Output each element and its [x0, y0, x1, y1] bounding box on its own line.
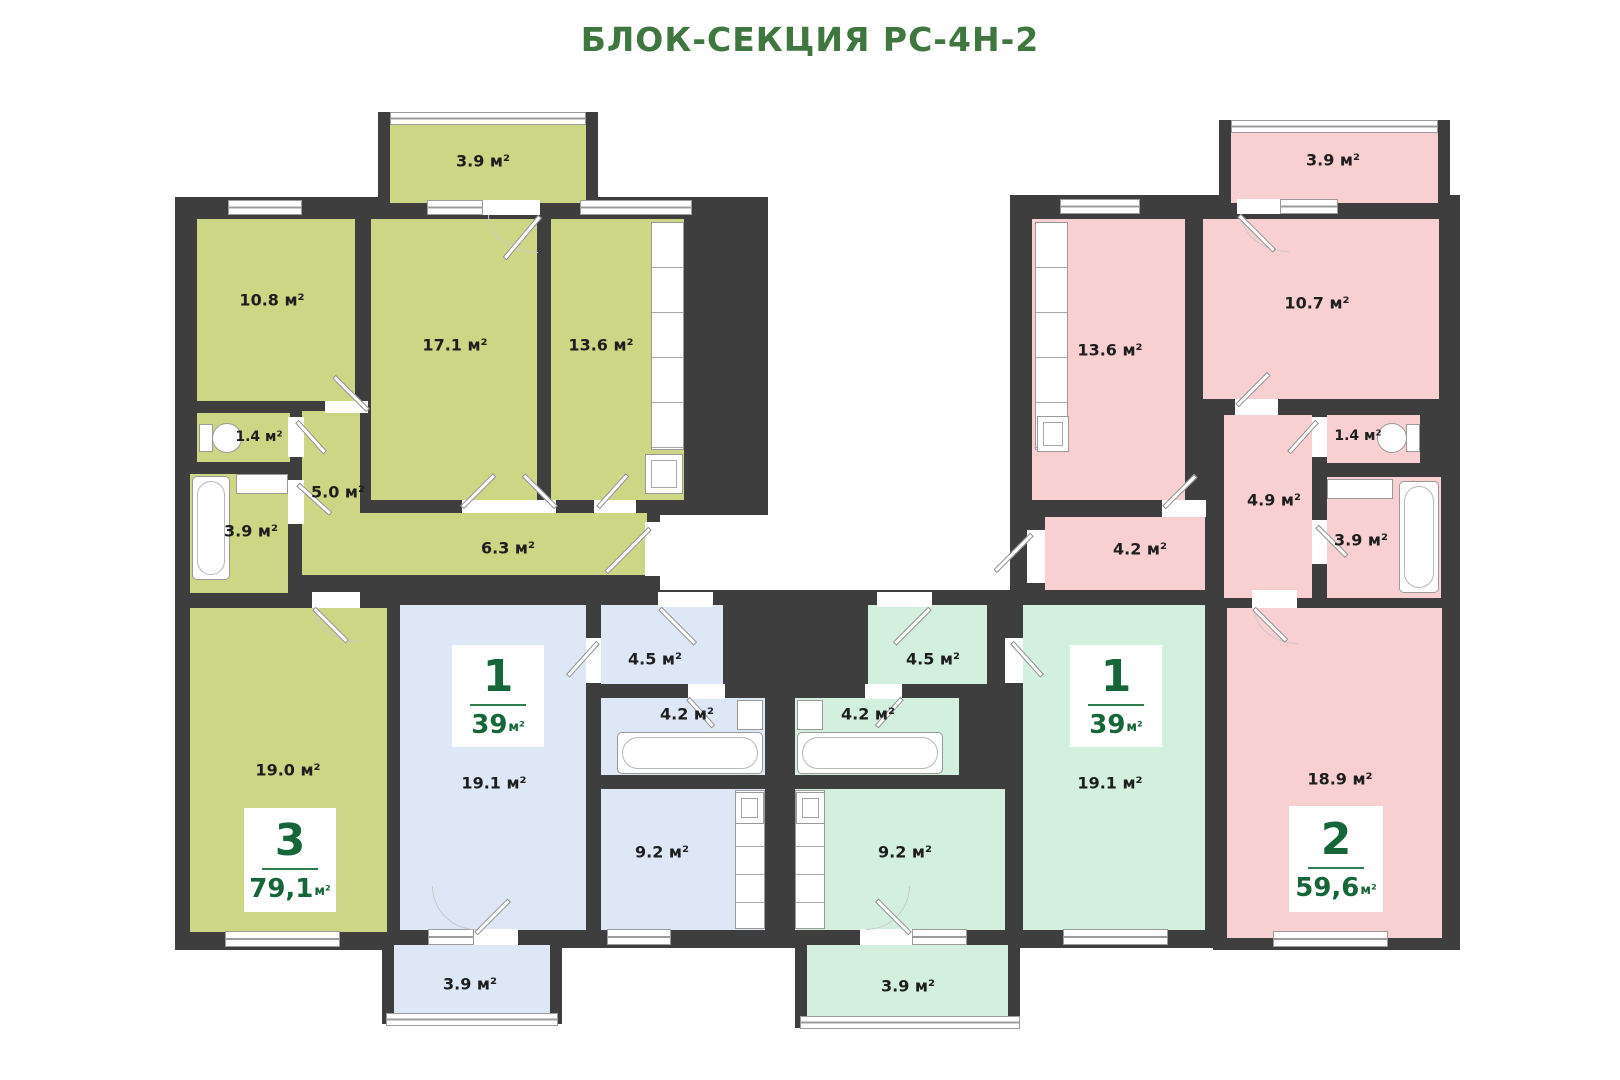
window	[1060, 199, 1140, 214]
room-hall-4-5-blue	[601, 605, 723, 684]
badge-area-unit: м²	[1360, 882, 1376, 900]
wall-block	[1219, 120, 1231, 205]
room-label-bedroom: 10.8 м²	[239, 291, 304, 310]
room-label-bath: 4.2 м²	[841, 705, 895, 724]
door-opening	[1252, 590, 1297, 608]
room-label-bedroom: 13.6 м²	[1077, 341, 1142, 360]
room-hall-4-5-mint	[868, 605, 987, 684]
apartment-badge-1room-blue: 1 39м²	[452, 645, 544, 747]
room-label-kitchen: 9.2 м²	[878, 843, 932, 862]
room-label-hall: 4.5 м²	[628, 650, 682, 669]
door-opening	[658, 592, 713, 607]
window	[228, 200, 302, 215]
badge-divider	[262, 868, 318, 870]
toilet-icon	[199, 424, 213, 452]
window	[390, 112, 586, 125]
apartment-badge-1room-mint: 1 39м²	[1070, 645, 1162, 747]
badge-total-area: 39	[1089, 712, 1125, 738]
door-opening	[1237, 199, 1280, 214]
badge-area-unit: м²	[508, 719, 524, 737]
door-opening	[688, 684, 725, 699]
room-label-corridor: 4.2 м²	[1113, 540, 1167, 559]
room-label-bath: 4.2 м²	[660, 705, 714, 724]
room-label-hall: 5.0 м²	[311, 483, 365, 502]
window	[607, 929, 671, 945]
bathtub-icon	[797, 732, 943, 774]
badge-divider	[1308, 867, 1364, 869]
window	[1280, 199, 1338, 214]
wall-block	[550, 944, 562, 1024]
badge-room-count: 1	[1101, 655, 1132, 699]
room-bedroom-10-8	[197, 219, 355, 401]
badge-total-area: 39	[471, 712, 507, 738]
badge-divider	[1088, 704, 1144, 706]
window	[580, 200, 692, 215]
room-label-living: 19.1 м²	[461, 774, 526, 793]
window	[1273, 931, 1388, 947]
wall-block	[382, 944, 394, 1024]
window	[912, 929, 967, 945]
door-opening	[462, 500, 556, 513]
badge-room-count: 2	[1321, 818, 1352, 862]
room-label-living: 19.1 м²	[1077, 774, 1142, 793]
door-opening	[865, 684, 902, 699]
room-living-17-1	[371, 219, 537, 500]
appliance-icon	[645, 454, 683, 494]
badge-divider	[470, 704, 526, 706]
bathtub-icon	[617, 732, 763, 774]
room-label-balcony: 3.9 м²	[881, 977, 935, 996]
room-label-balcony: 3.9 м²	[443, 975, 497, 994]
room-label-bath: 3.9 м²	[224, 522, 278, 541]
badge-room-count: 1	[483, 655, 514, 699]
room-label-balcony: 3.9 м²	[456, 152, 510, 171]
room-label-kitchen: 9.2 м²	[635, 843, 689, 862]
door-opening	[483, 200, 540, 215]
wall-block	[378, 112, 390, 215]
room-label-living: 17.1 м²	[422, 336, 487, 355]
window	[1063, 929, 1168, 945]
room-label-hall: 4.5 м²	[906, 650, 960, 669]
badge-total-area: 59,6	[1295, 875, 1359, 901]
room-label-bedroom: 10.7 м²	[1284, 294, 1349, 313]
door-opening	[312, 592, 360, 608]
room-label-balcony: 3.9 м²	[1306, 151, 1360, 170]
room-label-bedroom: 13.6 м²	[568, 336, 633, 355]
window	[428, 929, 474, 945]
room-label-wc: 1.4 м²	[235, 429, 282, 445]
badge-total-area: 79,1	[249, 876, 313, 902]
sink-icon	[236, 474, 288, 494]
badge-area-unit: м²	[314, 883, 330, 901]
appliance-icon	[796, 792, 825, 824]
room-label-living: 18.9 м²	[1307, 770, 1372, 789]
room-corridor-6-3	[302, 513, 647, 575]
window	[386, 1013, 558, 1026]
room-label-wc: 1.4 м²	[1334, 428, 1381, 444]
page-title: БЛОК-СЕКЦИЯ РС-4Н-2	[0, 20, 1620, 59]
sink-icon	[1327, 479, 1393, 499]
wardrobe-icon	[651, 222, 684, 450]
room-label-bath: 3.9 м²	[1334, 531, 1388, 550]
room-label-master: 19.0 м²	[255, 761, 320, 780]
sink-icon	[797, 700, 823, 730]
window	[427, 200, 483, 215]
floorplan-canvas: БЛОК-СЕКЦИЯ РС-4Н-2	[0, 0, 1620, 1080]
badge-area-unit: м²	[1126, 719, 1142, 737]
apartment-badge-2room: 2 59,6м²	[1289, 806, 1383, 912]
window	[1231, 120, 1438, 133]
room-label-hall: 4.9 м²	[1247, 491, 1301, 510]
sink-icon	[737, 700, 763, 730]
door-opening	[877, 592, 932, 607]
apartment-badge-3room: 3 79,1м²	[244, 808, 336, 912]
wall-block	[1438, 120, 1450, 205]
appliance-icon	[1037, 416, 1069, 452]
badge-room-count: 3	[275, 819, 306, 863]
window	[800, 1016, 1020, 1029]
appliance-icon	[735, 792, 764, 824]
window	[225, 931, 340, 947]
room-hall-5-0	[302, 411, 360, 521]
room-label-corridor: 6.3 м²	[481, 539, 535, 558]
bathtub-icon	[1399, 481, 1439, 593]
toilet-icon	[1406, 424, 1420, 452]
